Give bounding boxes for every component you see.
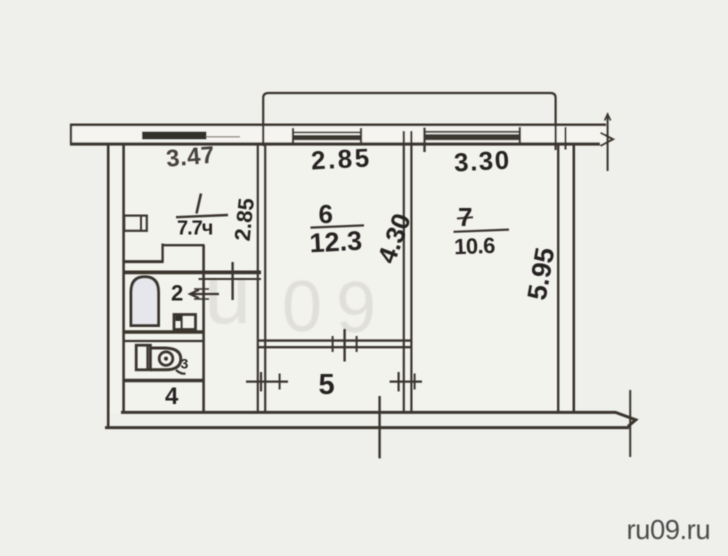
svg-text:3.30: 3.30 — [453, 145, 511, 178]
svg-text:0: 0 — [282, 267, 322, 347]
svg-text:ru09.ru: ru09.ru — [627, 514, 711, 545]
svg-text:2.85: 2.85 — [230, 197, 259, 242]
svg-text:12.3: 12.3 — [309, 226, 363, 259]
svg-text:2.85: 2.85 — [310, 142, 372, 175]
svg-text:3.47: 3.47 — [165, 142, 216, 173]
svg-text:7: 7 — [458, 202, 472, 232]
svg-text:10.6: 10.6 — [454, 233, 496, 259]
svg-text:5: 5 — [319, 369, 335, 401]
svg-text:3: 3 — [181, 356, 189, 372]
svg-text:4: 4 — [165, 383, 179, 410]
svg-text:2: 2 — [171, 281, 183, 306]
svg-text:6: 6 — [319, 199, 333, 229]
svg-text:7.7ч: 7.7ч — [177, 218, 213, 240]
